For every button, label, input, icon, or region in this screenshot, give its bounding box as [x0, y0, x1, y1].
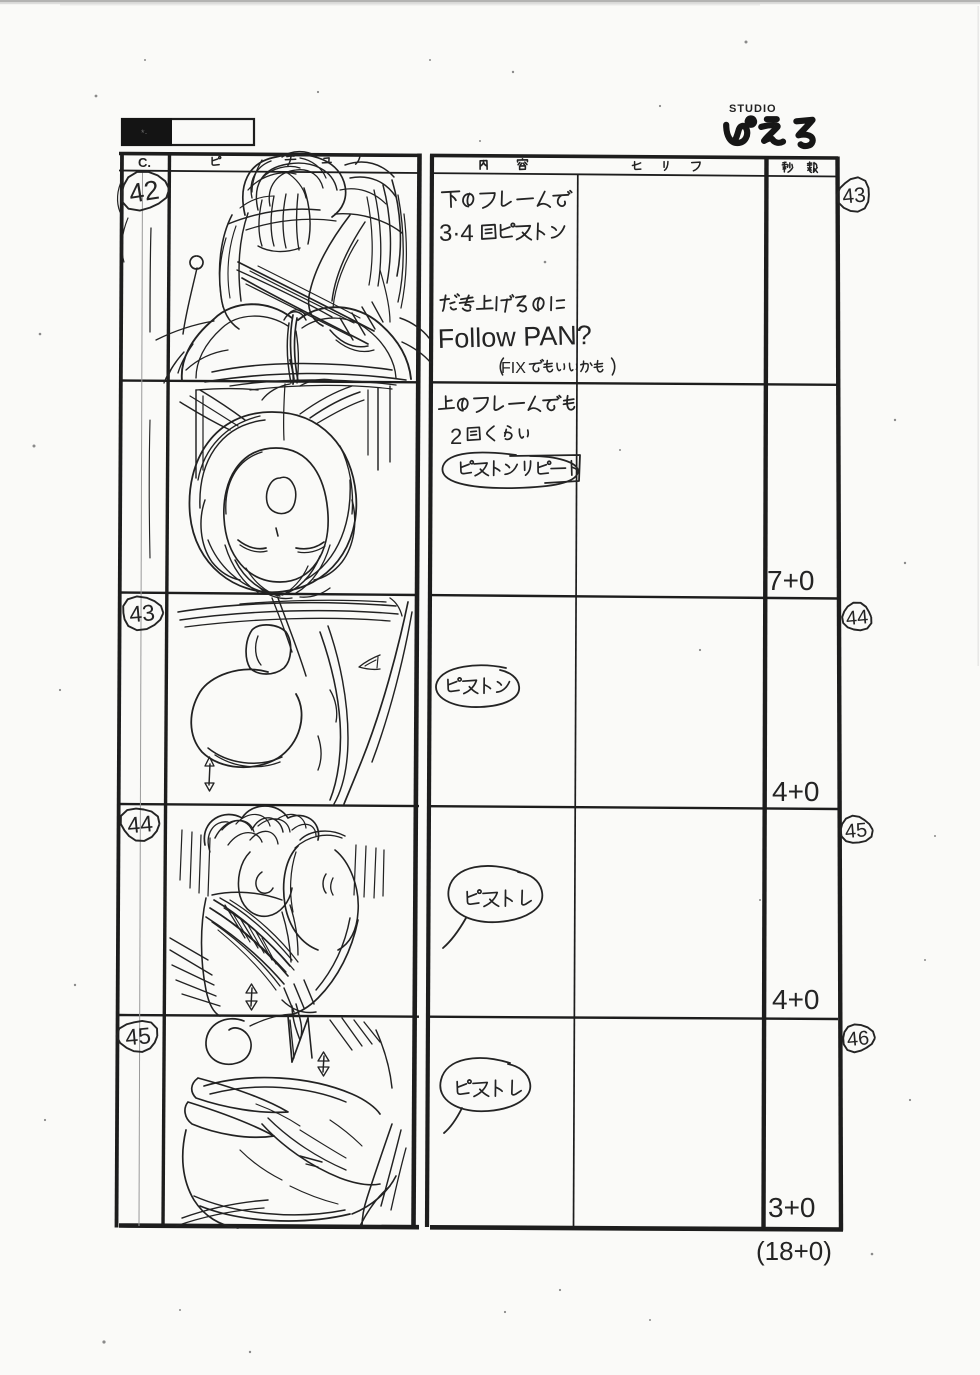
svg-text:45: 45	[124, 1022, 152, 1050]
svg-text:Follow PAN?: Follow PAN?	[437, 320, 592, 354]
svg-text:43: 43	[128, 599, 156, 627]
svg-text:46: 46	[846, 1027, 870, 1051]
svg-text:C.: C.	[138, 155, 151, 170]
svg-text:44: 44	[126, 810, 154, 838]
svg-text:45: 45	[844, 819, 868, 843]
svg-text:FIX: FIX	[501, 360, 526, 377]
svg-text:3+0: 3+0	[768, 1192, 816, 1223]
svg-text:STUDIO: STUDIO	[729, 103, 777, 115]
svg-text:(18+0): (18+0)	[756, 1236, 832, 1266]
svg-text:42: 42	[127, 175, 161, 209]
svg-text:*·: *·	[141, 128, 148, 138]
svg-text:4+0: 4+0	[772, 776, 820, 807]
svg-text:7+0: 7+0	[767, 565, 815, 596]
svg-text:44: 44	[845, 606, 869, 630]
svg-text:4+0: 4+0	[772, 984, 820, 1015]
svg-text:2: 2	[450, 424, 462, 449]
svg-text:3·4: 3·4	[439, 220, 474, 247]
svg-text:43: 43	[841, 184, 866, 209]
